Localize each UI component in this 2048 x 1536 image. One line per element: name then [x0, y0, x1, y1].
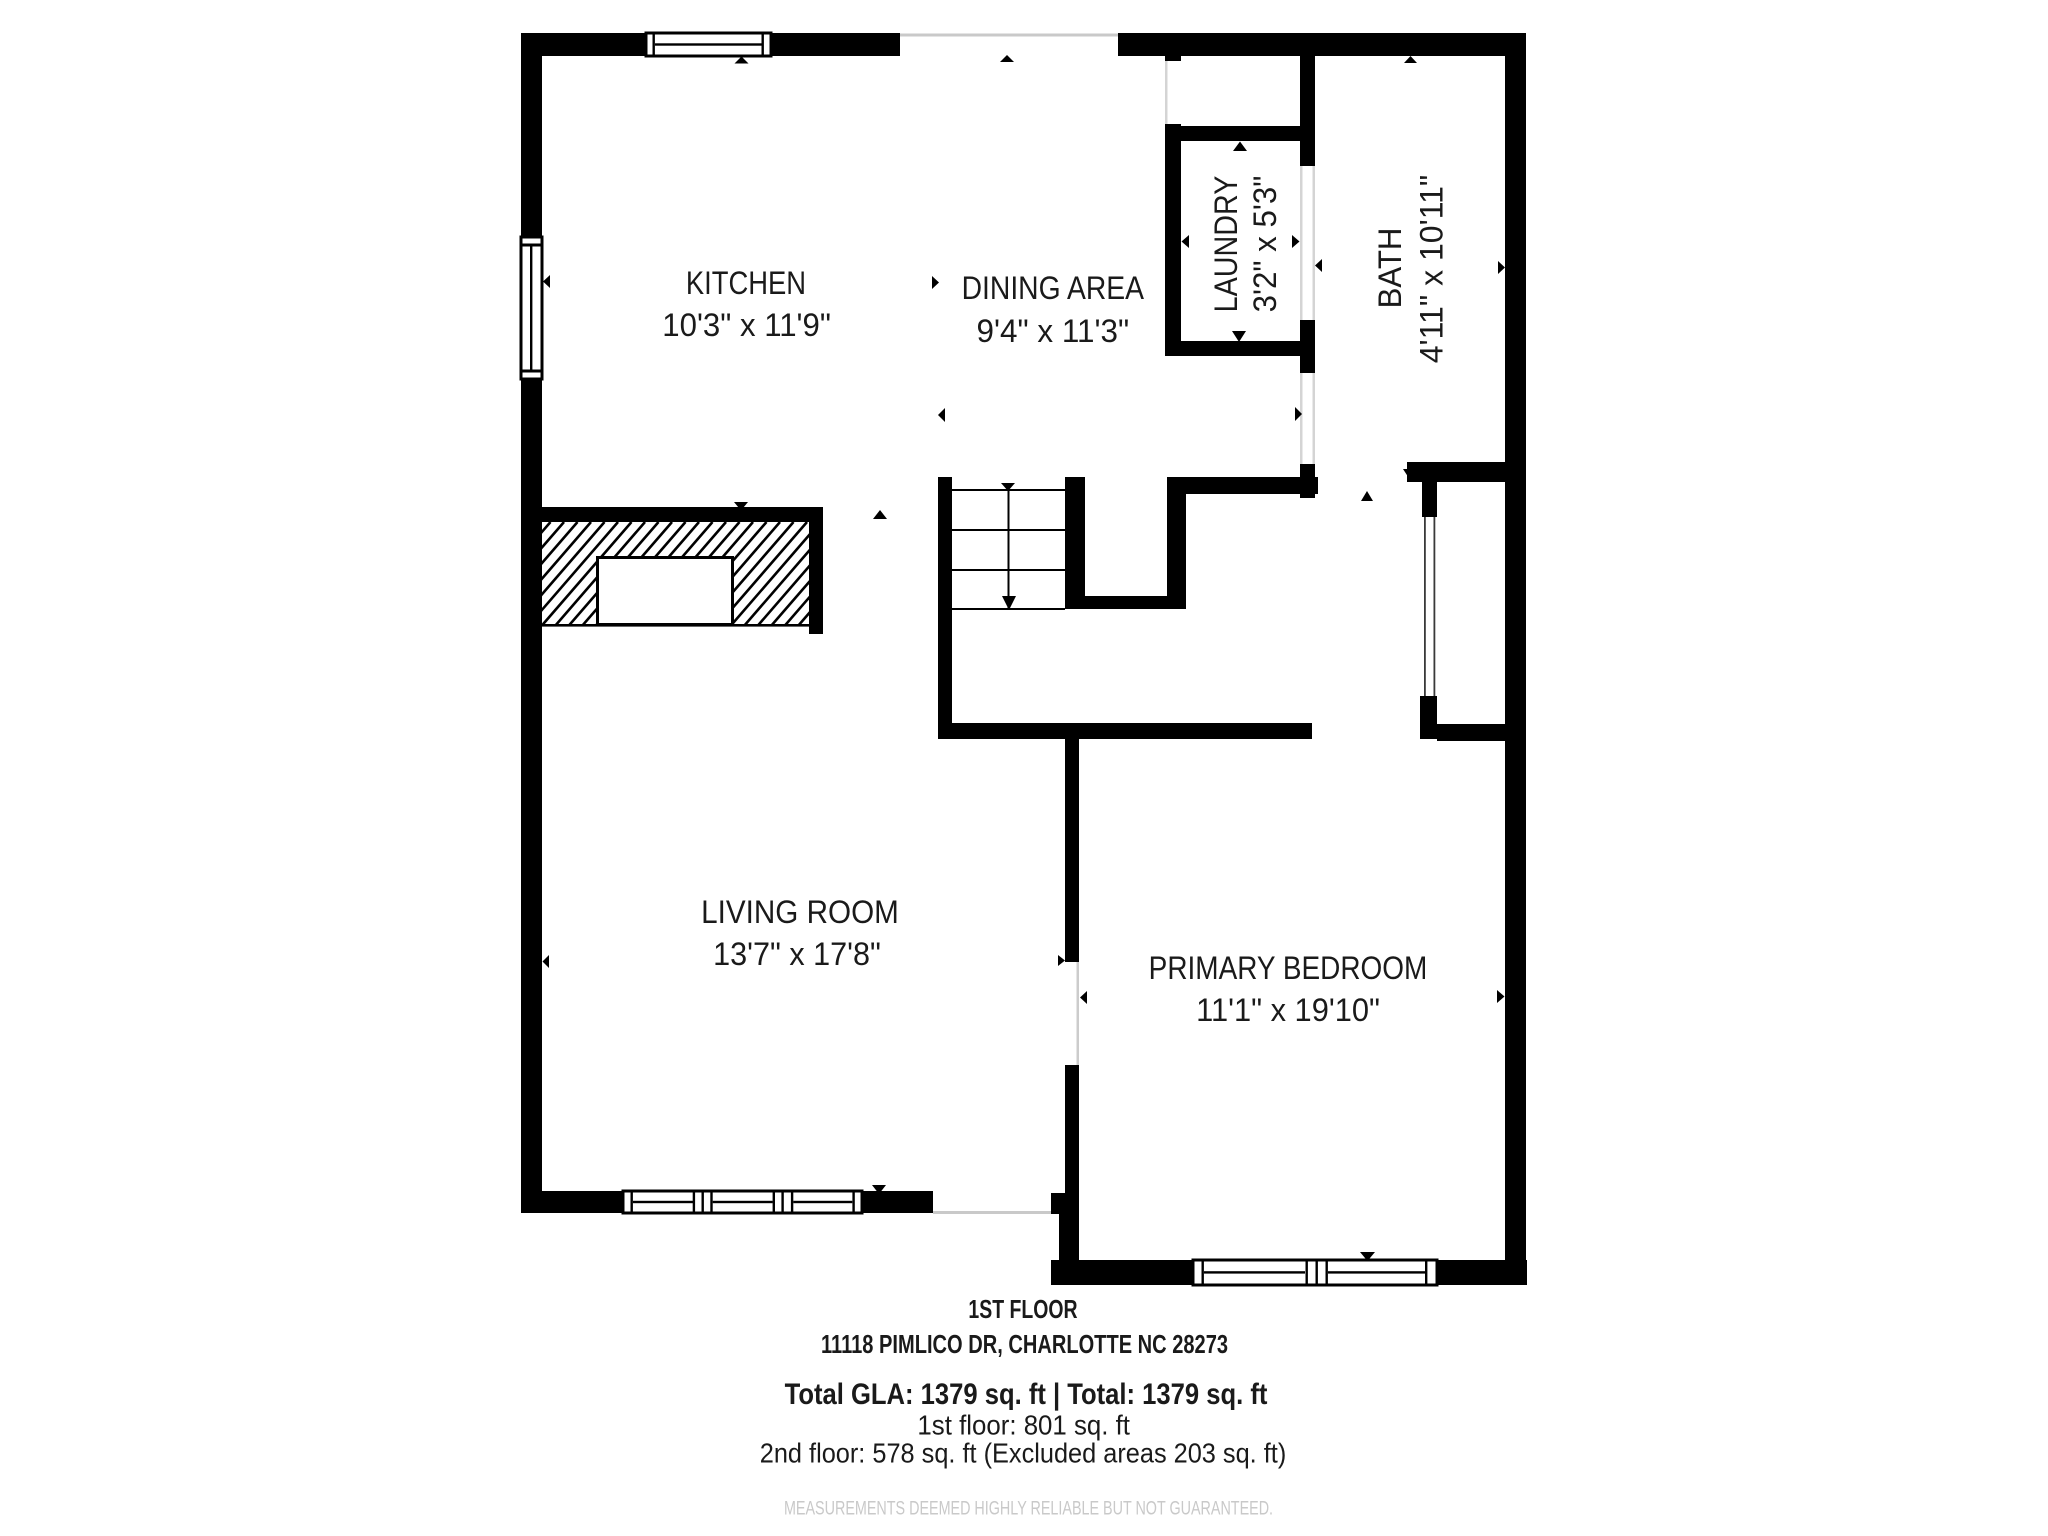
svg-text:13'7" x 17'8": 13'7" x 17'8": [713, 936, 881, 972]
svg-text:1st floor: 801 sq. ft: 1st floor: 801 sq. ft: [917, 1410, 1130, 1441]
svg-text:Total GLA: 1379 sq. ft | Total: Total GLA: 1379 sq. ft | Total: 1379 sq.…: [785, 1377, 1268, 1410]
svg-text:MEASUREMENTS DEEMED HIGHLY REL: MEASUREMENTS DEEMED HIGHLY RELIABLE BUT …: [784, 1497, 1273, 1519]
svg-text:KITCHEN: KITCHEN: [686, 266, 806, 301]
svg-text:DINING AREA: DINING AREA: [962, 271, 1145, 306]
svg-text:10'3" x 11'9": 10'3" x 11'9": [662, 307, 831, 343]
svg-text:LIVING ROOM: LIVING ROOM: [701, 894, 899, 930]
svg-text:1ST FLOOR: 1ST FLOOR: [968, 1294, 1078, 1323]
svg-text:BATH: BATH: [1372, 228, 1408, 309]
svg-text:11118 PIMLICO DR, CHARLOTTE NC: 11118 PIMLICO DR, CHARLOTTE NC 28273: [821, 1329, 1228, 1358]
svg-text:LAUNDRY: LAUNDRY: [1209, 176, 1245, 313]
svg-text:PRIMARY BEDROOM: PRIMARY BEDROOM: [1149, 951, 1428, 986]
svg-text:2nd floor: 578 sq. ft (Exclude: 2nd floor: 578 sq. ft (Excluded areas 20…: [760, 1437, 1287, 1468]
svg-text:3'2" x 5'3": 3'2" x 5'3": [1247, 176, 1283, 313]
svg-text:11'1" x 19'10": 11'1" x 19'10": [1196, 992, 1380, 1028]
svg-text:9'4" x 11'3": 9'4" x 11'3": [976, 313, 1129, 349]
svg-text:4'11" x 10'11": 4'11" x 10'11": [1414, 175, 1450, 364]
